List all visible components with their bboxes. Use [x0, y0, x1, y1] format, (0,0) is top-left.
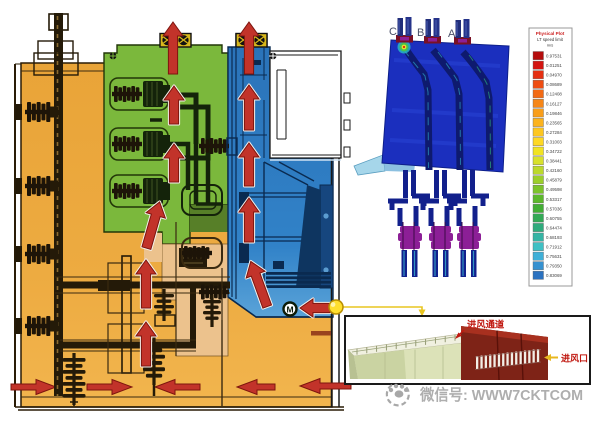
- svg-text:0.31003: 0.31003: [546, 139, 562, 144]
- svg-text:C: C: [389, 26, 397, 38]
- svg-text:0.04970: 0.04970: [546, 73, 562, 78]
- svg-text:0.45879: 0.45879: [546, 178, 562, 183]
- svg-text:m/s: m/s: [547, 43, 553, 48]
- svg-text:0.49598: 0.49598: [546, 187, 562, 192]
- svg-text:0.16127: 0.16127: [546, 101, 562, 106]
- svg-text:0.79350: 0.79350: [546, 264, 562, 269]
- svg-text:0.53317: 0.53317: [546, 197, 562, 202]
- svg-text:0.12408: 0.12408: [546, 92, 562, 97]
- svg-text:LT speed limit: LT speed limit: [537, 37, 564, 42]
- svg-text:0.34722: 0.34722: [546, 149, 562, 154]
- svg-text:0.97531: 0.97531: [546, 54, 562, 59]
- svg-text:0.83069: 0.83069: [546, 273, 562, 278]
- svg-text:0.68193: 0.68193: [546, 235, 562, 240]
- svg-text:0.27284: 0.27284: [546, 130, 562, 135]
- svg-text:0.01251: 0.01251: [546, 63, 562, 68]
- svg-text:0.71912: 0.71912: [546, 245, 562, 250]
- svg-text:进风通道: 进风通道: [467, 319, 505, 330]
- svg-text:A: A: [448, 28, 456, 40]
- svg-text:0.75631: 0.75631: [546, 254, 562, 259]
- svg-text:0.42160: 0.42160: [546, 168, 562, 173]
- svg-text:微信号: WWW7CKTCOM: 微信号: WWW7CKTCOM: [419, 386, 583, 404]
- svg-text:0.23565: 0.23565: [546, 120, 562, 125]
- svg-text:进风口: 进风口: [561, 353, 588, 364]
- svg-text:B: B: [417, 27, 424, 39]
- svg-text:0.60755: 0.60755: [546, 216, 562, 221]
- svg-text:0.19846: 0.19846: [546, 111, 562, 116]
- svg-text:0.64474: 0.64474: [546, 225, 562, 230]
- svg-text:0.57036: 0.57036: [546, 206, 562, 211]
- svg-text:0.08689: 0.08689: [546, 82, 562, 87]
- svg-text:Physical Plot: Physical Plot: [536, 31, 565, 36]
- svg-text:M: M: [286, 305, 293, 315]
- svg-text:0.38441: 0.38441: [546, 159, 562, 164]
